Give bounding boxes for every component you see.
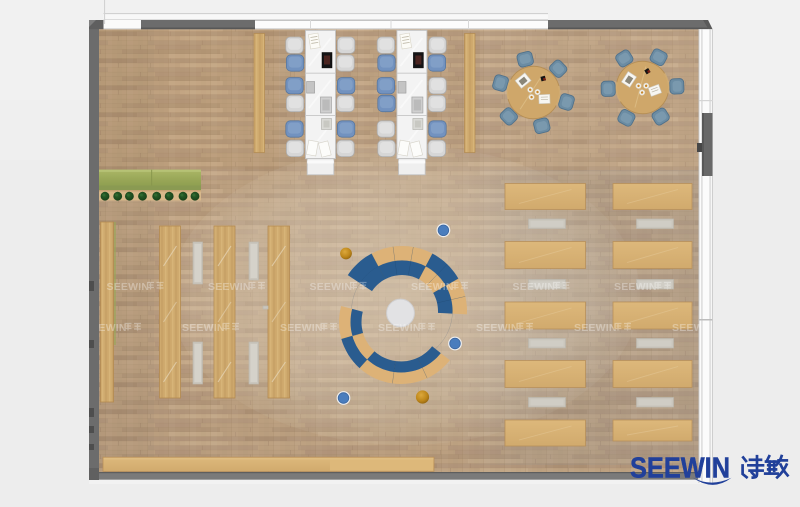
svg-text:SEEWIN: SEEWIN xyxy=(630,453,730,485)
